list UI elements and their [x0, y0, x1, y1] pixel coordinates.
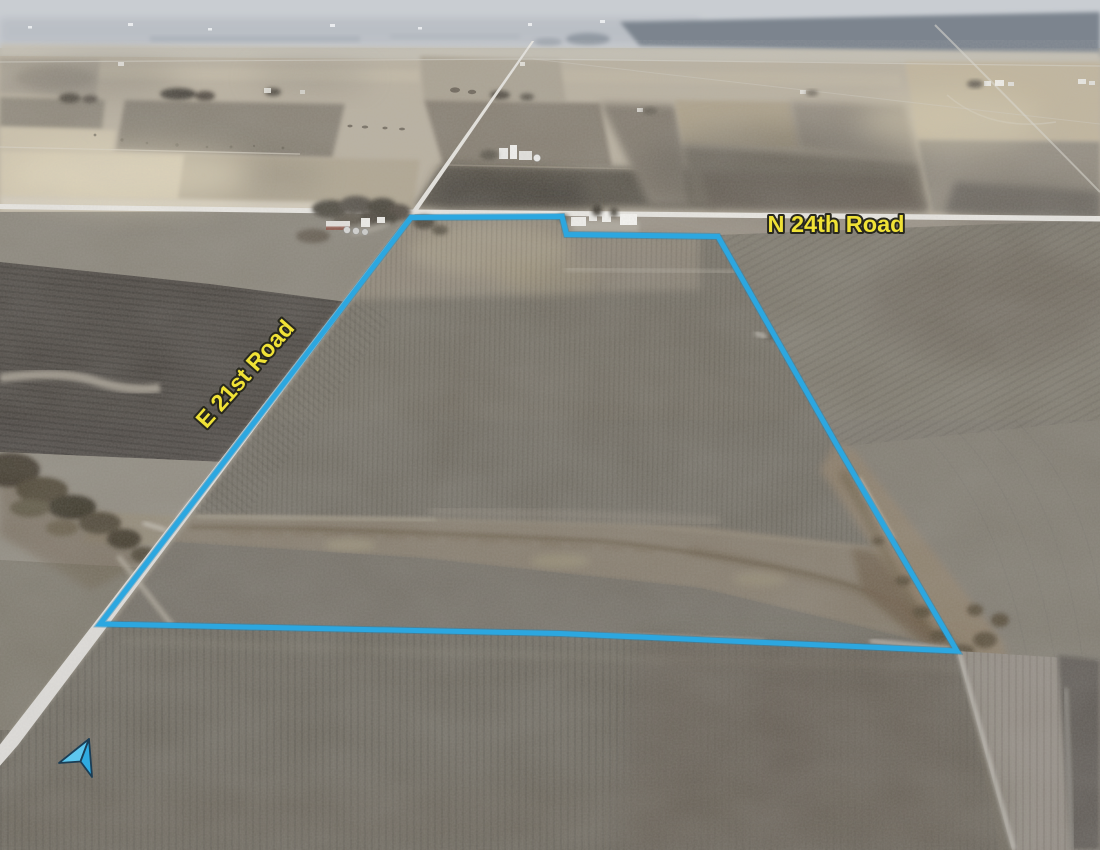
svg-text:N 24th Road: N 24th Road — [767, 211, 904, 237]
